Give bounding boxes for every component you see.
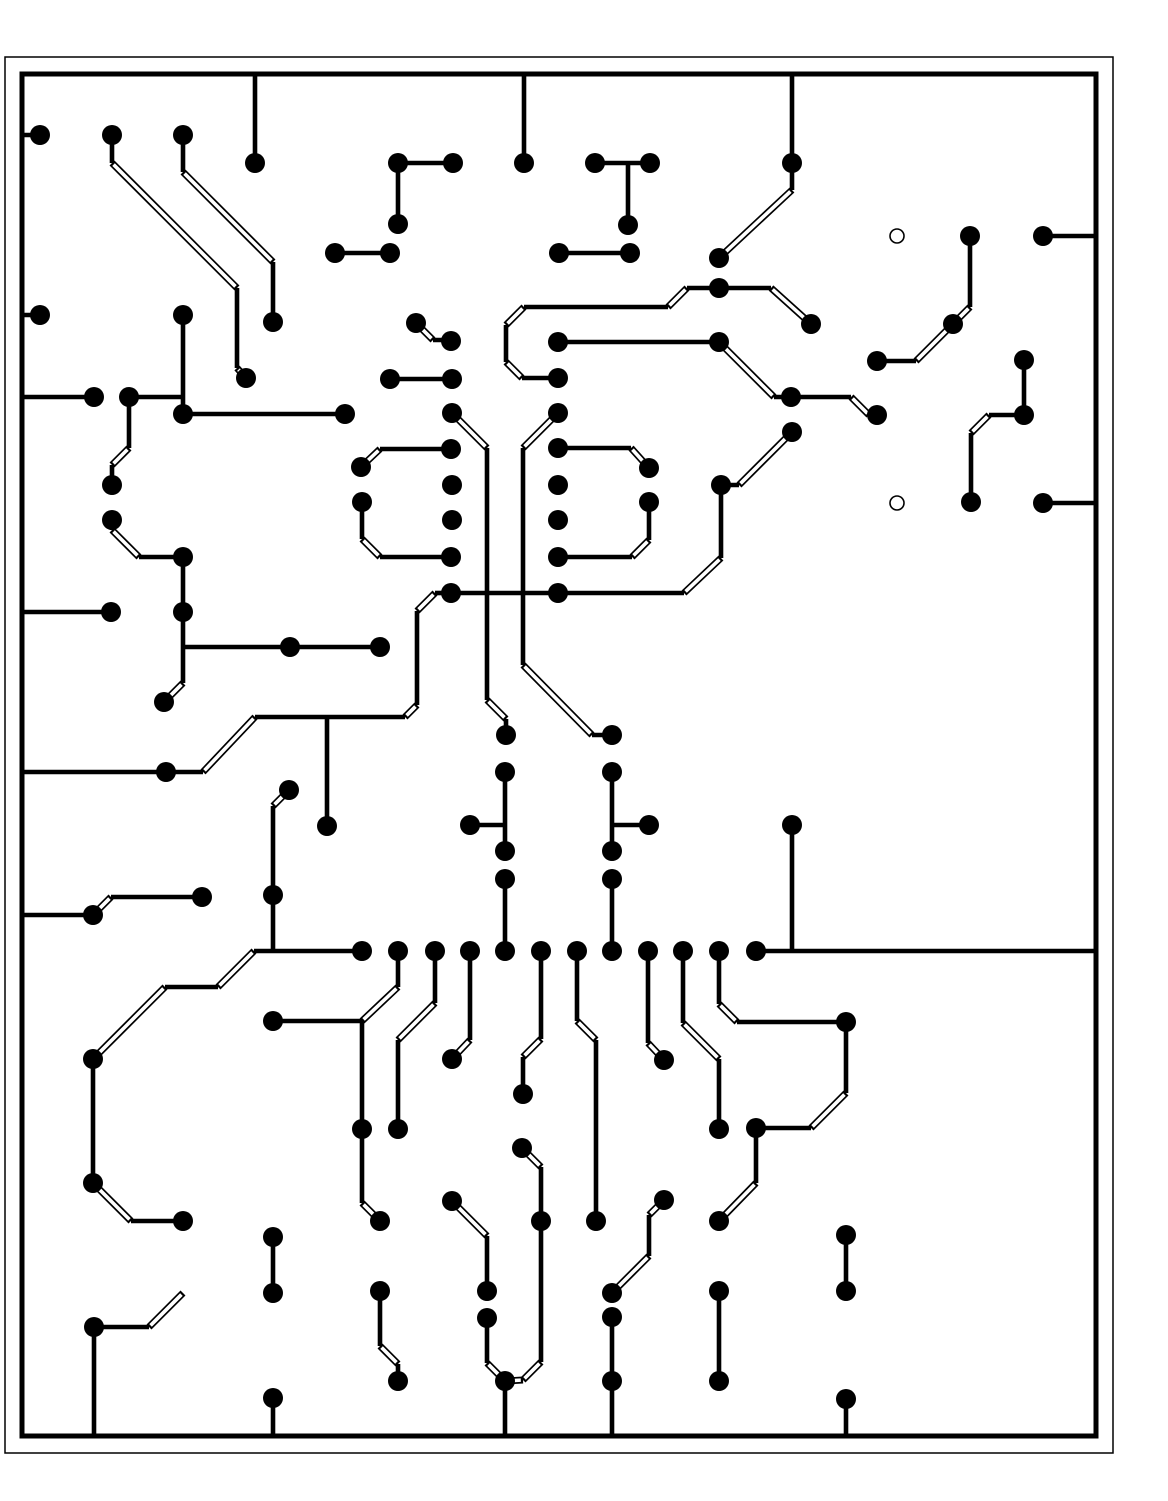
solder-pad <box>620 243 640 263</box>
solder-pad <box>173 602 193 622</box>
solder-pad <box>673 941 693 961</box>
solder-pad <box>279 780 299 800</box>
solder-pad <box>352 941 372 961</box>
solder-pad <box>943 314 963 334</box>
solder-pad <box>173 125 193 145</box>
solder-pad <box>406 313 426 333</box>
solder-pad <box>548 547 568 567</box>
solder-pad <box>709 332 729 352</box>
solder-pad <box>1033 226 1053 246</box>
solder-pad <box>1014 350 1034 370</box>
solder-pad <box>477 1281 497 1301</box>
solder-pad <box>380 369 400 389</box>
solder-pad <box>639 458 659 478</box>
solder-pad <box>173 305 193 325</box>
solder-pad <box>352 492 372 512</box>
solder-pad <box>84 387 104 407</box>
solder-pad <box>173 404 193 424</box>
solder-pad <box>618 215 638 235</box>
solder-pad <box>867 405 887 425</box>
solder-pad <box>836 1225 856 1245</box>
solder-pad <box>836 1389 856 1409</box>
solder-pad <box>335 404 355 424</box>
solder-pad <box>192 887 212 907</box>
solder-pad <box>263 1011 283 1031</box>
solder-pad <box>548 332 568 352</box>
solder-pad <box>867 351 887 371</box>
solder-pad <box>442 369 462 389</box>
solder-pad <box>531 941 551 961</box>
solder-pad <box>782 815 802 835</box>
solder-pad <box>325 243 345 263</box>
solder-pad <box>1014 405 1034 425</box>
solder-pad <box>83 1049 103 1069</box>
solder-pad <box>548 438 568 458</box>
solder-pad <box>351 457 371 477</box>
solder-pad <box>495 841 515 861</box>
solder-pad <box>388 941 408 961</box>
solder-pad <box>236 368 256 388</box>
solder-pad <box>654 1050 674 1070</box>
solder-pad <box>442 1191 462 1211</box>
solder-pad <box>119 387 139 407</box>
pcb-board-artwork <box>0 0 1168 1501</box>
solder-pad <box>496 725 516 745</box>
solder-pad <box>602 1307 622 1327</box>
solder-pad <box>639 815 659 835</box>
solder-pad <box>102 510 122 530</box>
solder-pad <box>280 637 300 657</box>
solder-pad <box>263 1283 283 1303</box>
solder-pad <box>548 403 568 423</box>
solder-pad <box>441 331 461 351</box>
solder-pad <box>567 941 587 961</box>
solder-pad <box>370 637 390 657</box>
solder-pad <box>442 403 462 423</box>
solder-pad <box>442 510 462 530</box>
solder-pad <box>441 583 461 603</box>
solder-pad <box>102 475 122 495</box>
solder-pad <box>83 905 103 925</box>
solder-pad <box>102 125 122 145</box>
solder-pad <box>709 941 729 961</box>
solder-pad <box>746 941 766 961</box>
solder-pad <box>602 841 622 861</box>
solder-pad <box>602 762 622 782</box>
solder-pad <box>513 1084 533 1104</box>
solder-pad <box>1033 493 1053 513</box>
solder-pad <box>30 125 50 145</box>
solder-pad <box>441 547 461 567</box>
solder-pad <box>477 1308 497 1328</box>
solder-pad <box>101 602 121 622</box>
solder-pad <box>531 1211 551 1231</box>
solder-pad <box>639 492 659 512</box>
solder-pad <box>263 312 283 332</box>
pcb-artwork-page <box>0 0 1168 1501</box>
solder-pad <box>836 1012 856 1032</box>
solder-pad <box>317 816 337 836</box>
solder-pad <box>548 368 568 388</box>
solder-pad <box>585 153 605 173</box>
solder-pad <box>425 941 445 961</box>
solder-pad <box>370 1211 390 1231</box>
solder-pad <box>380 243 400 263</box>
solder-pad <box>173 1211 193 1231</box>
solder-pad <box>388 153 408 173</box>
solder-pad <box>709 1211 729 1231</box>
solder-pad <box>709 1371 729 1391</box>
solder-pad <box>654 1190 674 1210</box>
solder-pad <box>441 439 461 459</box>
solder-pad <box>782 422 802 442</box>
solder-pad <box>443 153 463 173</box>
solder-pad <box>602 1283 622 1303</box>
solder-pad <box>388 214 408 234</box>
solder-pad <box>746 1118 766 1138</box>
solder-pad <box>84 1317 104 1337</box>
solder-pad <box>549 243 569 263</box>
solder-pad <box>781 387 801 407</box>
solder-pad <box>495 762 515 782</box>
solder-pad <box>638 941 658 961</box>
solder-pad <box>173 547 193 567</box>
solder-pad <box>548 510 568 530</box>
solder-pad <box>495 941 515 961</box>
mounting-hole <box>890 229 904 243</box>
solder-pad <box>370 1281 390 1301</box>
solder-pad <box>442 1049 462 1069</box>
solder-pad <box>460 815 480 835</box>
solder-pad <box>836 1281 856 1301</box>
solder-pad <box>495 1371 515 1391</box>
solder-pad <box>961 492 981 512</box>
solder-pad <box>30 305 50 325</box>
solder-pad <box>442 475 462 495</box>
solder-pad <box>709 248 729 268</box>
solder-pad <box>602 1371 622 1391</box>
solder-pad <box>263 1388 283 1408</box>
solder-pad <box>263 1227 283 1247</box>
solder-pad <box>602 725 622 745</box>
solder-pad <box>83 1173 103 1193</box>
solder-pad <box>495 869 515 889</box>
solder-pad <box>602 869 622 889</box>
solder-pad <box>960 226 980 246</box>
solder-pad <box>801 314 821 334</box>
solder-pad <box>782 153 802 173</box>
solder-pad <box>154 692 174 712</box>
solder-pad <box>602 941 622 961</box>
solder-pad <box>514 153 534 173</box>
solder-pad <box>512 1138 532 1158</box>
solder-pad <box>156 762 176 782</box>
solder-pad <box>352 1119 372 1139</box>
mounting-hole <box>890 496 904 510</box>
solder-pad <box>388 1371 408 1391</box>
solder-pad <box>263 885 283 905</box>
solder-pad <box>548 475 568 495</box>
solder-pad <box>245 153 265 173</box>
solder-pad <box>388 1119 408 1139</box>
solder-pad <box>640 153 660 173</box>
solder-pad <box>709 278 729 298</box>
solder-pad <box>586 1211 606 1231</box>
solder-pad <box>711 475 731 495</box>
solder-pad <box>548 583 568 603</box>
solder-pad <box>709 1281 729 1301</box>
solder-pad <box>709 1119 729 1139</box>
solder-pad <box>460 941 480 961</box>
